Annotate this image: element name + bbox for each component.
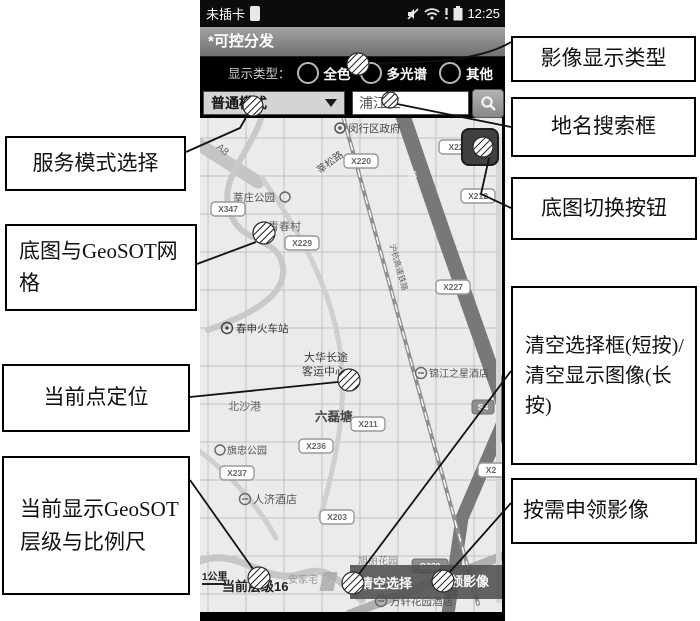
dropdown-value: 普通模式: [211, 93, 267, 113]
display-type-row: 显示类型： 全色 多光谱 其他: [200, 57, 505, 88]
road-label: 莘松路: [314, 148, 346, 176]
poi-label: 大华长途: [304, 350, 348, 364]
magnifier-icon: [480, 95, 497, 112]
road-minor: [200, 448, 276, 538]
poi-label: 旗忠公园: [227, 444, 267, 457]
basemap-switch-button[interactable]: [462, 129, 498, 165]
road-label: 春申: [406, 169, 418, 190]
poi-label: 北沙港: [228, 400, 261, 413]
callout-label: 服务模式选择: [33, 148, 159, 180]
callout-service-mode: 服务模式选择: [5, 136, 186, 191]
callout-place-search: 地名搜索框: [511, 97, 696, 157]
route-badge: X212: [461, 189, 495, 203]
route-badge: X220: [344, 154, 378, 168]
search-button[interactable]: [472, 89, 504, 118]
sim-icon: [250, 6, 260, 21]
map-view[interactable]: A8 莘松路 沪杭高速铁路 春申 闵行区政府 莘庄公园 青春村 春申火车站: [200, 118, 502, 612]
mute-icon: [406, 7, 420, 21]
route-badge: X237: [220, 466, 254, 480]
status-left: 未插卡: [200, 4, 260, 23]
route-badge: X236: [299, 439, 333, 453]
figure-annotated-screenshot: 服务模式选择 底图与GeoSOT网格 当前点定位 当前显示GeoSOT层级与比例…: [0, 0, 700, 621]
svg-text:X211: X211: [358, 419, 378, 429]
svg-text:X236: X236: [306, 441, 326, 451]
display-type-label: 显示类型：: [228, 63, 291, 82]
chevron-down-icon: [325, 99, 337, 107]
radio-pan[interactable]: 全色: [297, 62, 351, 84]
service-mode-dropdown[interactable]: 普通模式: [203, 91, 345, 115]
poi-label: 青春村: [268, 219, 301, 233]
callout-label: 按需申领影像: [523, 495, 649, 527]
clock-label: 12:25: [467, 6, 500, 21]
callout-geosot-level-scale: 当前显示GeoSOT层级与比例尺: [2, 456, 190, 595]
radio-other[interactable]: 其他: [439, 62, 493, 84]
callout-label: 清空选择框(短按)/清空显示图像(长按): [525, 331, 695, 421]
callout-label: 底图切换按钮: [541, 193, 667, 225]
battery-icon: [453, 6, 463, 21]
park-icon: [280, 192, 290, 202]
callout-label: 当前显示GeoSOT层级与比例尺: [20, 493, 188, 558]
clear-selection-button[interactable]: 清空选择: [360, 576, 413, 591]
callout-current-point: 当前点定位: [2, 364, 190, 432]
bottom-nav-strip: [200, 612, 505, 621]
svg-text:X237: X237: [227, 468, 247, 478]
route-badge: X227: [436, 280, 470, 294]
route-badge: X203: [320, 510, 354, 524]
svg-text:X347: X347: [218, 204, 238, 214]
wifi-icon: [424, 7, 440, 20]
poi-label: 闵行区政府: [348, 122, 401, 135]
route-badge: X347: [211, 202, 245, 216]
svg-text:S4: S4: [478, 402, 489, 412]
map-canvas: A8 莘松路 沪杭高速铁路 春申 闵行区政府 莘庄公园 青春村 春申火车站: [200, 118, 502, 612]
radio-multispectral[interactable]: 多光谱: [360, 62, 428, 84]
radio-label: 其他: [466, 63, 493, 83]
svg-text:X227: X227: [443, 282, 463, 292]
callout-label: 当前点定位: [44, 382, 149, 414]
status-bar: 未插卡: [200, 0, 505, 27]
poi-label: 六磊塘: [315, 409, 353, 424]
poi-label: 人济酒店: [253, 492, 297, 506]
callout-basemap-geosot-grid: 底图与GeoSOT网格: [5, 224, 197, 311]
request-imagery-button[interactable]: 申领影像: [437, 574, 490, 589]
callout-clear-selection: 清空选择框(短按)/清空显示图像(长按): [511, 286, 697, 465]
svg-text:X212: X212: [468, 191, 488, 201]
radio-circle[interactable]: [297, 62, 319, 84]
radio-label: 多光谱: [387, 63, 428, 83]
svg-text:X2: X2: [486, 465, 497, 475]
route-badge: X2: [478, 463, 502, 477]
callout-image-display-type: 影像显示类型: [511, 36, 696, 82]
callout-label: 底图与GeoSOT网格: [19, 236, 195, 299]
control-row: 普通模式: [200, 88, 505, 118]
route-badge: X211: [351, 417, 385, 431]
route-badge-s4: S4: [472, 400, 494, 414]
signal-alert-icon: [444, 7, 449, 20]
park-icon: [215, 445, 225, 455]
callout-label: 影像显示类型: [541, 43, 667, 75]
callout-basemap-switch: 底图切换按钮: [511, 177, 697, 240]
radio-label: 全色: [324, 63, 351, 83]
poi-label: 客运中心: [302, 364, 346, 378]
poi-labels: 闵行区政府 莘庄公园 青春村 春申火车站 大华长途 客运中心 锦江之星酒店 北沙…: [215, 122, 489, 608]
status-right: 12:25: [406, 6, 505, 21]
app-title: *可控分发: [208, 33, 274, 50]
svg-text:X203: X203: [327, 512, 347, 522]
callout-label: 地名搜索框: [551, 111, 656, 143]
train-station-dot: [225, 326, 228, 329]
search-input[interactable]: [352, 91, 469, 115]
map-scrollbar[interactable]: [496, 138, 501, 603]
poi-label: 安家宅: [288, 573, 318, 586]
poi-label: 锦江之星酒店: [429, 367, 489, 380]
zoom-level-label: 当前层级16: [222, 579, 288, 594]
svg-text:X229: X229: [292, 238, 312, 248]
phone-screen: 未插卡: [200, 0, 505, 621]
radio-circle[interactable]: [439, 62, 461, 84]
radio-circle[interactable]: [360, 62, 382, 84]
carrier-label: 未插卡: [206, 4, 245, 23]
poi-label: 春申火车站: [236, 322, 289, 335]
svg-text:X220: X220: [351, 156, 371, 166]
callout-request-imagery: 按需申领影像: [511, 478, 697, 544]
gov-icon-dot: [338, 126, 342, 130]
app-title-bar: *可控分发: [200, 27, 505, 57]
route-badge: X229: [285, 236, 319, 250]
